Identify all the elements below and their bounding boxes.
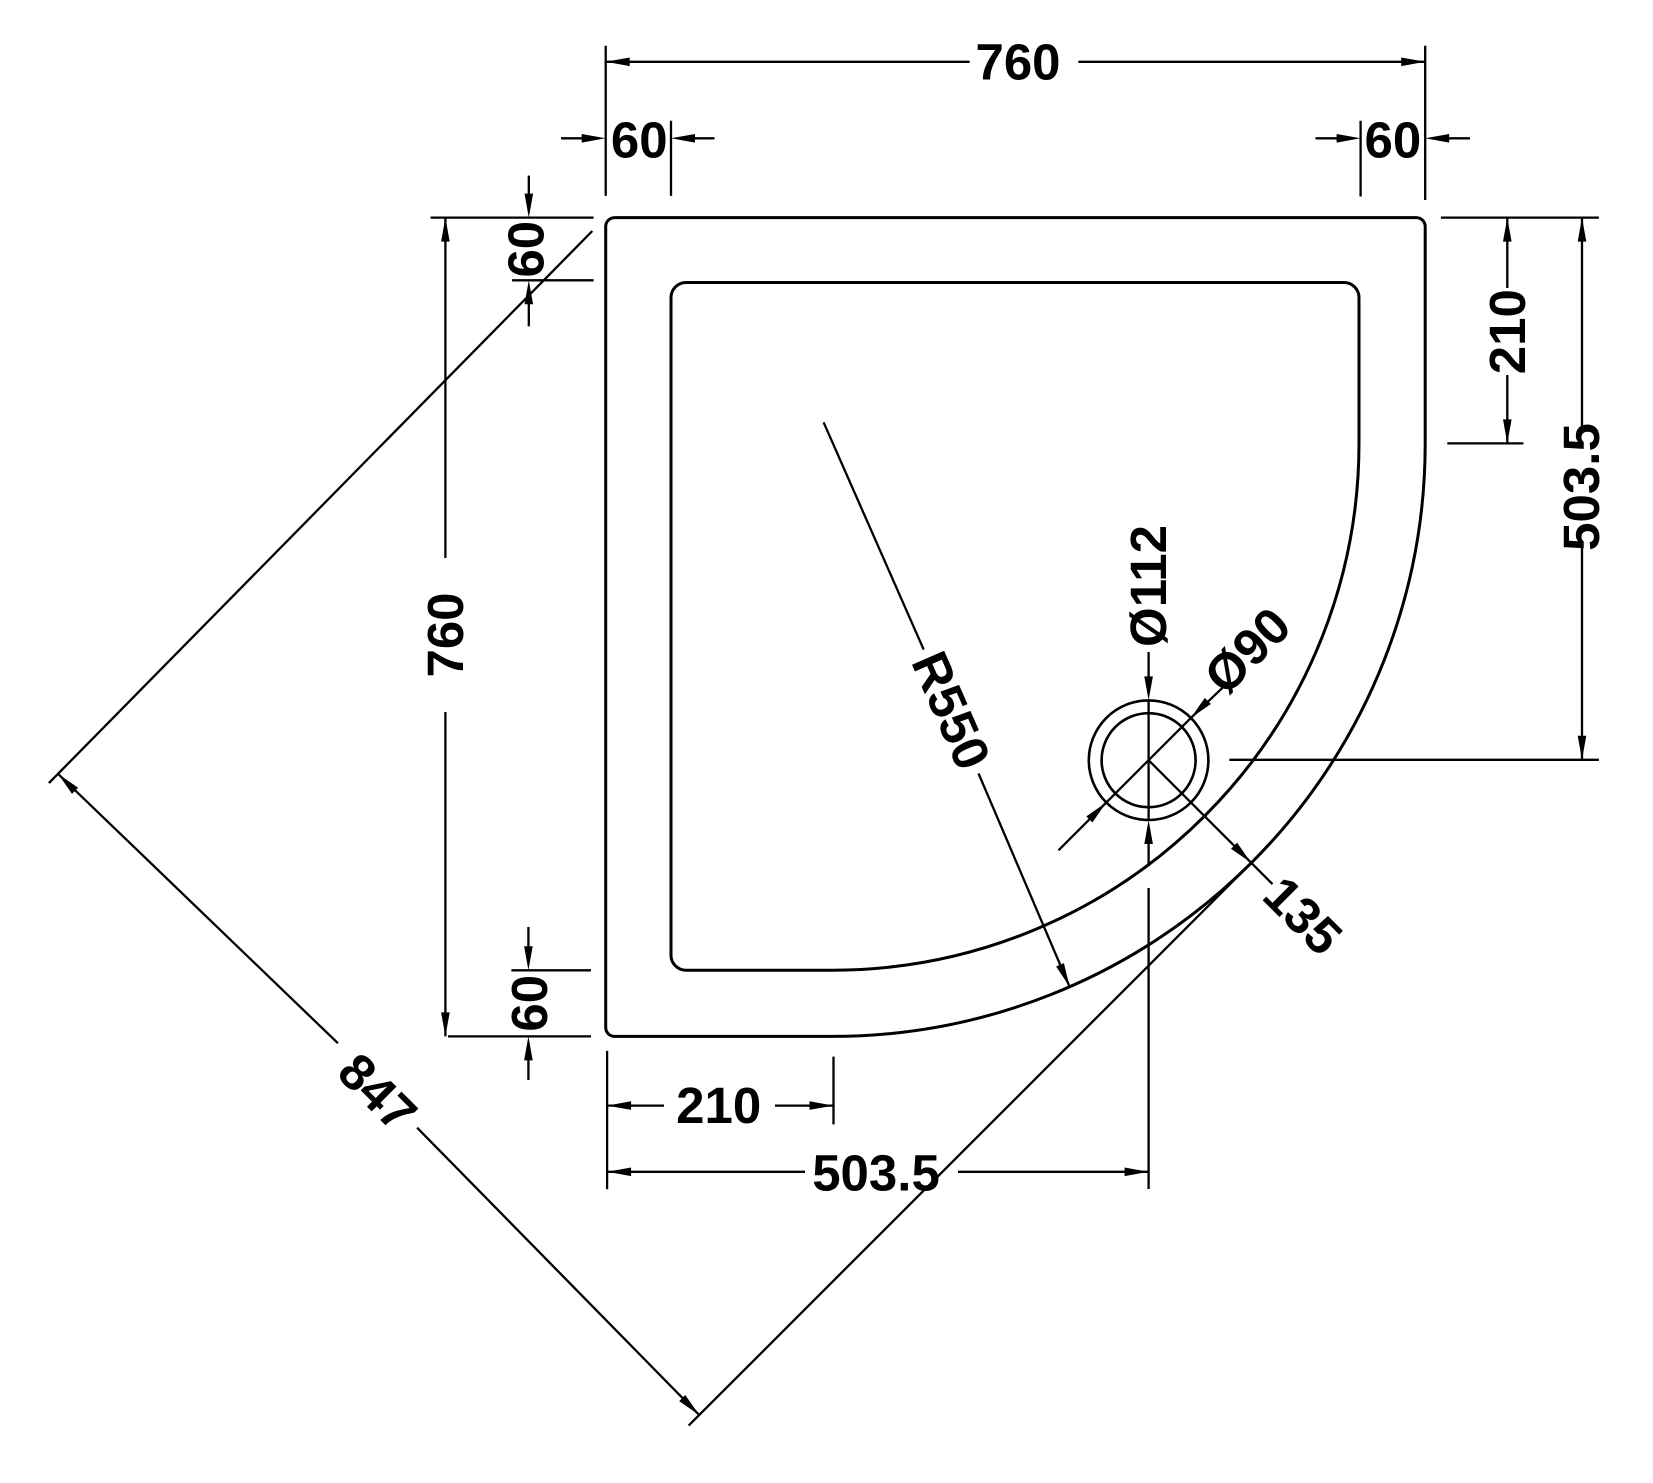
svg-text:60: 60 — [497, 221, 554, 278]
svg-text:60: 60 — [611, 111, 668, 168]
svg-text:60: 60 — [1365, 111, 1422, 168]
svg-text:210: 210 — [1479, 289, 1536, 374]
svg-text:60: 60 — [501, 975, 558, 1032]
svg-text:760: 760 — [975, 33, 1060, 90]
svg-text:503.5: 503.5 — [1553, 423, 1610, 551]
svg-text:760: 760 — [417, 592, 474, 677]
svg-text:Ø112: Ø112 — [1120, 525, 1177, 647]
svg-text:210: 210 — [676, 1077, 761, 1134]
